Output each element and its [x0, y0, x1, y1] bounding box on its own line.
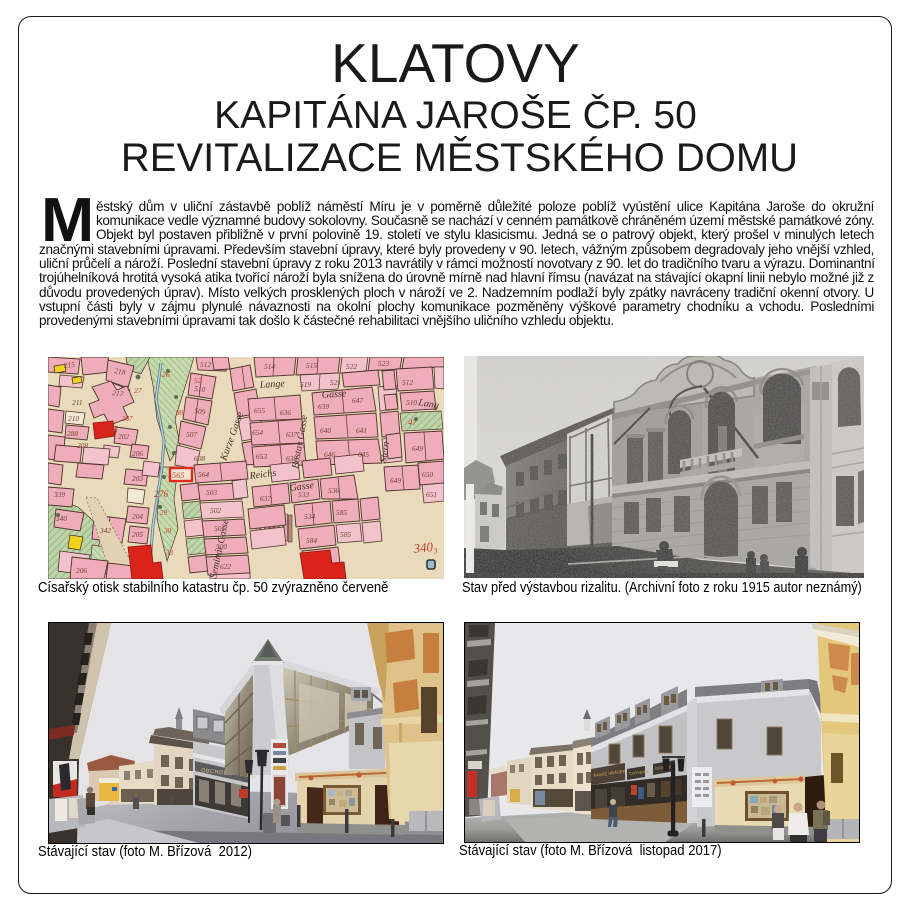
svg-text:585: 585 — [340, 530, 351, 539]
svg-text:Gasse: Gasse — [321, 388, 347, 401]
svg-text:Lange: Lange — [258, 378, 285, 391]
svg-text:637: 637 — [286, 430, 297, 439]
svg-text:208: 208 — [77, 441, 88, 450]
svg-text:342: 342 — [99, 526, 111, 535]
svg-text:637: 637 — [260, 494, 271, 503]
svg-text:636: 636 — [280, 408, 291, 417]
svg-text:639: 639 — [318, 402, 329, 411]
svg-text:509: 509 — [194, 406, 207, 416]
svg-text:502: 502 — [210, 506, 221, 515]
svg-text:30: 30 — [163, 527, 172, 535]
svg-text:500: 500 — [216, 542, 227, 551]
svg-text:565: 565 — [172, 471, 184, 480]
svg-text:522: 522 — [346, 362, 357, 371]
svg-text:501: 501 — [214, 524, 225, 533]
svg-text:29: 29 — [160, 509, 168, 517]
svg-text:514: 514 — [264, 362, 275, 371]
svg-text:641: 641 — [356, 426, 367, 435]
svg-text:515: 515 — [306, 361, 317, 370]
svg-text:206: 206 — [76, 566, 87, 575]
svg-text:275: 275 — [102, 425, 118, 436]
svg-text:215: 215 — [63, 360, 75, 370]
svg-text:512: 512 — [402, 378, 413, 387]
svg-text:205: 205 — [132, 530, 143, 539]
svg-text:211: 211 — [72, 398, 83, 407]
svg-text:654: 654 — [252, 428, 263, 437]
svg-text:288: 288 — [67, 429, 78, 438]
svg-text:608: 608 — [194, 454, 205, 463]
svg-text:585: 585 — [336, 508, 347, 517]
svg-text:534: 534 — [304, 512, 315, 521]
svg-text:649: 649 — [390, 476, 401, 485]
svg-text:655: 655 — [254, 406, 265, 415]
svg-text:507: 507 — [186, 430, 197, 439]
svg-text:202: 202 — [118, 432, 129, 441]
svg-text:646: 646 — [324, 450, 335, 459]
svg-text:638: 638 — [286, 454, 297, 463]
svg-text:622: 622 — [220, 562, 231, 571]
svg-text:27: 27 — [134, 386, 143, 395]
svg-text:584: 584 — [306, 536, 317, 545]
svg-text:533: 533 — [298, 490, 309, 499]
svg-text:203: 203 — [132, 474, 143, 483]
svg-text:536: 536 — [328, 486, 339, 495]
svg-text:98: 98 — [176, 409, 184, 417]
svg-text:564: 564 — [198, 470, 209, 479]
svg-text:33: 33 — [165, 549, 174, 557]
svg-text:206: 206 — [132, 449, 143, 458]
svg-text:649: 649 — [412, 444, 423, 453]
svg-text:510: 510 — [406, 398, 417, 407]
svg-text:650: 650 — [422, 470, 433, 479]
svg-text:645: 645 — [358, 450, 369, 459]
svg-text:276: 276 — [154, 490, 168, 500]
svg-text:521: 521 — [330, 378, 341, 387]
svg-text:210: 210 — [68, 414, 79, 423]
svg-text:287: 287 — [122, 415, 133, 423]
svg-text:217: 217 — [112, 388, 125, 398]
svg-text:519: 519 — [300, 380, 311, 389]
svg-text:512: 512 — [200, 360, 211, 369]
svg-text:52: 52 — [194, 376, 202, 385]
svg-text:640: 640 — [320, 426, 331, 435]
svg-text:339: 339 — [53, 490, 65, 499]
svg-text:523: 523 — [378, 359, 389, 368]
svg-text:647: 647 — [352, 396, 363, 405]
svg-text:510: 510 — [194, 384, 206, 394]
svg-text:653: 653 — [256, 452, 267, 461]
svg-text:651: 651 — [426, 490, 437, 499]
svg-text:204: 204 — [132, 512, 143, 521]
svg-text:340₃: 340₃ — [412, 539, 438, 557]
svg-text:503: 503 — [206, 488, 217, 497]
